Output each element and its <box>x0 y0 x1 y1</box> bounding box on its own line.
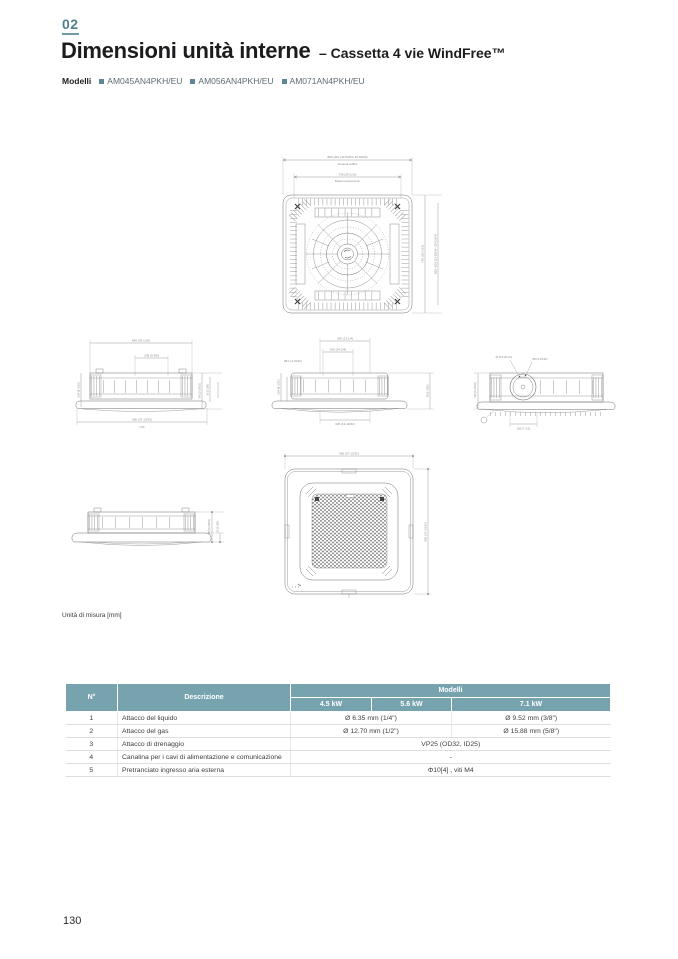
row-desc: Attacco del liquido <box>118 712 291 725</box>
dim-label: Foratura soffitto <box>338 162 358 166</box>
model-name: AM045AN4PKH/EU <box>107 76 182 86</box>
dim-label: 950 (37-13/32) <box>424 522 428 542</box>
dim-label: 88.1 (3-15/32) <box>284 359 302 363</box>
row-no: 1 <box>66 712 118 725</box>
dim-label: 738 (29-1/16) <box>421 245 425 263</box>
page-number: 130 <box>63 915 81 927</box>
dim-label: Bulloni sospensione <box>335 179 360 183</box>
side-view-right-drawing: Ø 210 (8-1/4) 88 (3-15/32) 145 (5-23/32)… <box>460 328 635 432</box>
model-name: AM071AN4PKH/EU <box>290 76 365 86</box>
row-value: Φ10[4] , viti M4 <box>291 764 611 777</box>
dim-label: 860~910 (33-55/64~35-53/64) <box>434 234 438 274</box>
spec-table: N° Descrizione Modelli 4.5 kW 5.6 kW 7.1… <box>65 683 611 777</box>
row-value: Ø 12.70 mm (1/2") <box>291 725 452 738</box>
side-view-center-drawing: 336 (13-1/4) 629 (24-3/4) 88.1 (3-15/32)… <box>263 332 458 432</box>
model-name: AM056AN4PKH/EU <box>198 76 273 86</box>
dim-label: 629 (24-3/4) <box>330 348 346 352</box>
model-bullet-icon <box>282 79 287 84</box>
dim-label: 738 (29-1/16) <box>338 173 356 177</box>
row-no: 2 <box>66 725 118 738</box>
row-desc: Canalina per i cavi di alimentazione e c… <box>118 751 291 764</box>
dim-label: 336 (13-1/4) <box>337 337 353 341</box>
dim-label: 35 (1-3/8) <box>216 521 220 532</box>
dim-label: Ø 210 (8-1/4) <box>496 355 513 359</box>
col-header-56kw: 5.6 kW <box>372 698 452 712</box>
table-row: 4 Canalina per i cavi di alimentazione e… <box>66 751 611 764</box>
row-value: Ø 9.52 mm (3/8") <box>452 712 611 725</box>
col-header-models: Modelli <box>291 684 611 698</box>
top-view-drawing: 860~910 (33-55/64~35-53/64) Foratura sof… <box>270 148 455 323</box>
col-header-71kw: 7.1 kW <box>452 698 611 712</box>
row-no: 4 <box>66 751 118 764</box>
dim-label: 88 (3-15/32) <box>532 357 547 361</box>
row-desc: Attacco del gas <box>118 725 291 738</box>
side-view-left-drawing: 840 (33-1/16) 238 (9-3/8) 204 (8-1/32) 1… <box>73 332 258 432</box>
dim-label: 840 (33-1/16) <box>132 339 150 343</box>
model-item: AM071AN4PKH/EU <box>276 76 365 86</box>
row-desc: Attacco di drenaggio <box>118 738 291 751</box>
dim-label: 26 (1-1/32) <box>426 385 430 398</box>
dim-label: (13) <box>140 425 145 429</box>
row-value: Ø 15.88 mm (5/8") <box>452 725 611 738</box>
panel-view-drawing: 950 (37-13/32) 950 (37-13/32) <box>260 448 465 618</box>
dim-label: 860~910 (33-55/64~35-53/64) <box>327 155 367 159</box>
row-no: 3 <box>66 738 118 751</box>
col-header-desc: Descrizione <box>118 684 291 712</box>
dim-label: 145 (5-23/32) <box>207 519 211 535</box>
dim-label: 238 (9-3/8) <box>144 354 159 358</box>
document-page: 02 Dimensioni unità interne – Cassetta 4… <box>0 0 678 959</box>
models-row: ModelliAM045AN4PKH/EUAM056AN4PKH/EUAM071… <box>62 76 367 86</box>
model-item: AM045AN4PKH/EU <box>93 76 182 86</box>
col-header-no: N° <box>66 684 118 712</box>
dim-label: 950 (37-13/32) <box>339 452 359 456</box>
row-desc: Pretranciato ingresso aria esterna <box>118 764 291 777</box>
dim-label: 950 (37-13/32) <box>132 418 152 422</box>
row-no: 5 <box>66 764 118 777</box>
dim-label: 145 (5-23/32) <box>473 382 477 398</box>
chapter-number: 02 <box>62 16 79 35</box>
page-title: Dimensioni unità interne – Cassetta 4 vi… <box>61 38 506 64</box>
model-item: AM056AN4PKH/EU <box>184 76 273 86</box>
units-note: Unità di misura [mm] <box>62 612 122 619</box>
dim-label: 145 (5-23/32) <box>198 383 202 399</box>
models-label: Modelli <box>62 76 91 86</box>
col-header-45kw: 4.5 kW <box>291 698 372 712</box>
table-row: 2 Attacco del gas Ø 12.70 mm (1/2") Ø 15… <box>66 725 611 738</box>
row-value: - <box>291 751 611 764</box>
dim-label: 345 (13-19/32) <box>335 422 355 426</box>
iso-view-drawing: 145 (5-23/32) 35 (1-3/8) <box>58 478 263 583</box>
dim-label: 204 (8-1/32) <box>277 379 281 394</box>
table-row: 1 Attacco del liquido Ø 6.35 mm (1/4") Ø… <box>66 712 611 725</box>
table-row: 5 Pretranciato ingresso aria esterna Φ10… <box>66 764 611 777</box>
table-row: 3 Attacco di drenaggio VP25 (OD32, ID25) <box>66 738 611 751</box>
model-bullet-icon <box>99 79 104 84</box>
row-value: VP25 (OD32, ID25) <box>291 738 611 751</box>
model-bullet-icon <box>190 79 195 84</box>
row-value: Ø 6.35 mm (1/4") <box>291 712 452 725</box>
title-subtitle: – Cassetta 4 vie WindFree™ <box>319 45 506 61</box>
dim-label: 35 (1-3/8) <box>206 384 210 395</box>
dim-label: 204 (8-1/32) <box>77 382 81 397</box>
title-main: Dimensioni unità interne <box>61 38 311 63</box>
dim-label: 190 (7-1/2) <box>517 427 531 431</box>
